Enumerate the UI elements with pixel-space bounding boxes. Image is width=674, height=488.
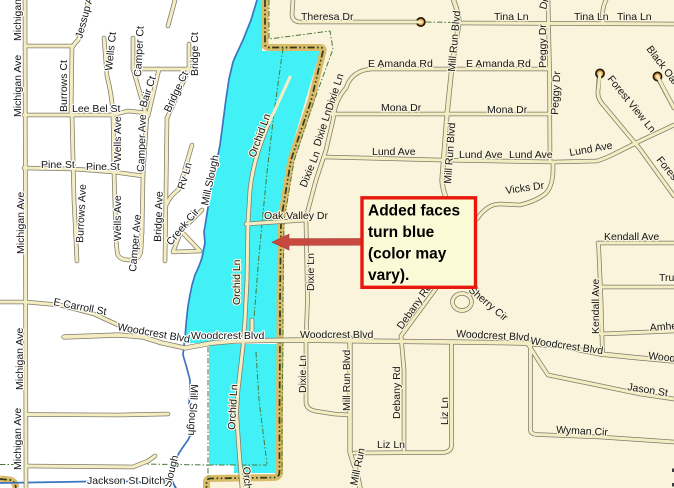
svg-text:Orchid Ln: Orchid Ln [240,466,255,488]
svg-text:Added faces: Added faces [368,203,460,220]
svg-text:Woodcrest Blvd: Woodcrest Blvd [300,329,373,341]
svg-text:Bridge Ave: Bridge Ave [152,191,166,242]
svg-text:Dixie Ln: Dixie Ln [297,355,309,393]
svg-text:Mona Dr: Mona Dr [381,102,422,114]
svg-text:Michigan Ave: Michigan Ave [12,55,24,117]
svg-text:Liz Ln: Liz Ln [439,397,451,425]
svg-text:Kendall Ave: Kendall Ave [590,279,602,334]
svg-text:Debany Rd: Debany Rd [391,366,403,419]
svg-text:Trudy: Trudy [659,272,674,284]
svg-text:Tina Ln: Tina Ln [574,11,609,23]
svg-text:Bridge Ct: Bridge Ct [189,32,201,76]
svg-text:Theresa Dr: Theresa Dr [301,11,354,23]
svg-text:Woodcrest Blvd: Woodcrest Blvd [191,330,264,342]
svg-text:Lund Ave: Lund Ave [372,146,416,158]
svg-text:Michigan Ave: Michigan Ave [14,328,26,390]
svg-text:vary).: vary). [368,267,409,284]
svg-text:Peggy Dr: Peggy Dr [537,24,549,68]
svg-text:Camper Ave: Camper Ave [135,114,149,172]
svg-text:turn blue: turn blue [368,224,435,241]
svg-text:Lee Bel St: Lee Bel St [72,103,121,115]
svg-text:Lund Ave: Lund Ave [509,149,553,161]
svg-text:Mill Run Blvd: Mill Run Blvd [341,350,353,411]
svg-text:Pine St: Pine St [41,159,75,171]
svg-text:Jackson St Ditch: Jackson St Ditch [87,475,165,487]
svg-text:Peggy Dr: Peggy Dr [549,70,563,115]
svg-text:Liz Ln: Liz Ln [377,439,405,451]
svg-text:Tina Ln: Tina Ln [494,11,529,23]
svg-text:(color may: (color may [368,246,447,263]
svg-text:E Amanda Rd: E Amanda Rd [466,58,531,70]
svg-text:Dixie Ln: Dixie Ln [305,253,317,291]
svg-text:Kendall Ave: Kendall Ave [604,231,659,243]
svg-text:Wells Ave: Wells Ave [112,195,124,241]
svg-text:Mona Dr: Mona Dr [487,104,528,116]
svg-text:Michigan Ave: Michigan Ave [12,408,24,470]
svg-text:Tina Ln: Tina Ln [617,11,652,23]
svg-text:Orchid Ln: Orchid Ln [231,259,243,305]
svg-text:Michigan A: Michigan A [12,0,24,41]
svg-text:Amherst: Amherst [649,319,674,334]
svg-text:Lund Ave: Lund Ave [459,149,503,161]
svg-text:Michigan Ave: Michigan Ave [15,192,27,254]
svg-text:Wells Ave: Wells Ave [112,116,124,162]
svg-text:Orchid Ln: Orchid Ln [226,384,240,430]
svg-text:Oak Valley Dr: Oak Valley Dr [264,210,328,222]
svg-text:Burrows Ct: Burrows Ct [58,60,70,112]
svg-text:E Amanda Rd: E Amanda Rd [368,58,433,70]
